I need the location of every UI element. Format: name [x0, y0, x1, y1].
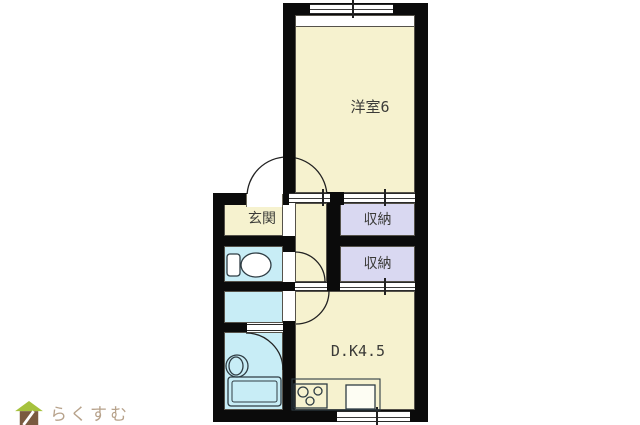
window-tick — [352, 0, 354, 18]
door-threshold-bathroom — [247, 324, 283, 331]
window-line — [337, 417, 410, 418]
threshold-line — [295, 287, 327, 288]
door-swing-arc-bathroom — [246, 333, 283, 370]
sliding-door-line — [340, 287, 415, 288]
wall — [327, 205, 340, 291]
door-threshold-hall-dk — [295, 282, 327, 291]
house-icon — [14, 401, 44, 425]
window-tick — [376, 407, 378, 425]
door-swing-arc-dk — [296, 291, 329, 324]
sliding-door-symbol-western-hall — [289, 193, 330, 203]
sliding-door-line — [344, 198, 415, 199]
wall — [283, 246, 295, 252]
wall — [224, 282, 295, 291]
watermark-brand-text: らくすむ — [50, 400, 130, 425]
window-symbol-bottom — [337, 411, 410, 422]
wall — [213, 323, 247, 332]
room-label-dining-kitchen: D.K4.5 — [308, 344, 408, 359]
wall — [340, 236, 415, 246]
sliding-door-symbol-storage-upper — [344, 193, 415, 203]
sliding-door-tick — [322, 189, 324, 206]
wall — [224, 236, 295, 246]
watermark-logo: らくすむ — [14, 400, 130, 425]
room-label-storage-upper: 収納 — [340, 213, 415, 227]
wall — [283, 321, 295, 332]
wall — [213, 193, 247, 205]
sliding-door-tick — [384, 189, 386, 206]
house-roof — [15, 401, 43, 411]
door-arcs-layer — [0, 0, 640, 425]
wall — [213, 193, 224, 422]
room-label-entrance: 玄関 — [236, 212, 288, 226]
wall — [283, 3, 295, 195]
floor-plan-canvas: 洋室6 玄関 収納 収納 D.K4.5 らくすむ — [0, 0, 640, 425]
window-symbol-top — [310, 4, 393, 14]
front-door-threshold — [246, 194, 283, 207]
sliding-door-tick — [384, 278, 386, 295]
wall — [415, 3, 428, 422]
sliding-door-symbol-storage-lower — [340, 282, 415, 291]
wall — [283, 332, 295, 410]
room-label-storage-lower: 収納 — [340, 257, 415, 271]
room-label-western: 洋室6 — [320, 100, 420, 115]
door-swing-arc-toilet — [295, 252, 325, 282]
